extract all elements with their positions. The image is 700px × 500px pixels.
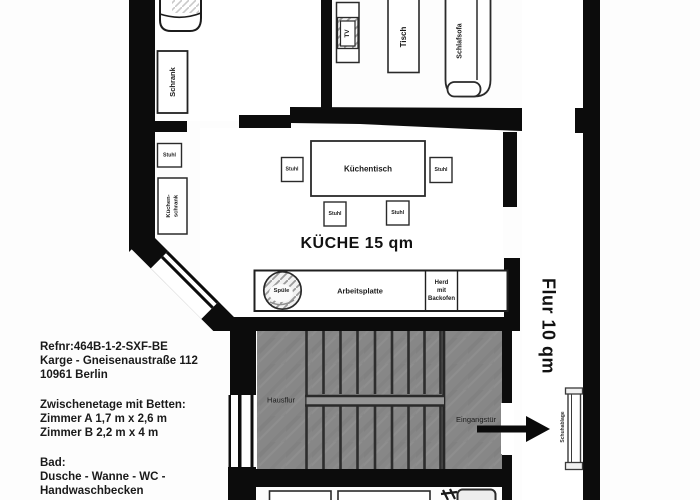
svg-text:Schrank: Schrank — [168, 66, 177, 96]
svg-text:Karge - Gneisenaustraße 112: Karge - Gneisenaustraße 112 — [40, 355, 198, 367]
svg-text:schrank: schrank — [174, 194, 180, 217]
svg-text:10961 Berlin: 10961 Berlin — [40, 369, 108, 381]
svg-text:Hausflur: Hausflur — [267, 396, 295, 405]
svg-text:Küchen-: Küchen- — [166, 194, 172, 217]
svg-text:Zwischenetage mit Betten:: Zwischenetage mit Betten: — [40, 399, 186, 411]
svg-text:Zimmer B 2,2 m x 4 m: Zimmer B 2,2 m x 4 m — [40, 427, 158, 439]
svg-text:Herd: Herd — [435, 280, 449, 286]
svg-text:Bad:: Bad: — [40, 457, 66, 469]
svg-text:Stuhl: Stuhl — [163, 153, 177, 159]
svg-text:Handwaschbecken: Handwaschbecken — [40, 485, 144, 497]
svg-text:Schlafsofa: Schlafsofa — [457, 23, 464, 59]
svg-text:Dusche - Wanne - WC -: Dusche - Wanne - WC - — [40, 471, 166, 483]
svg-text:Arbeitsplatte: Arbeitsplatte — [337, 287, 383, 296]
svg-text:Schuhablage: Schuhablage — [560, 411, 566, 442]
svg-text:Backofen: Backofen — [428, 296, 455, 302]
svg-text:TV: TV — [344, 29, 351, 38]
svg-text:Stuhl: Stuhl — [435, 167, 449, 173]
svg-text:Stuhl: Stuhl — [391, 210, 405, 216]
svg-text:Spüle: Spüle — [274, 288, 291, 294]
svg-text:mit: mit — [437, 288, 446, 294]
svg-text:Zimmer A 1,7 m x 2,6 m: Zimmer A 1,7 m x 2,6 m — [40, 413, 167, 425]
svg-text:Tisch: Tisch — [399, 27, 408, 48]
svg-text:Refnr:464B-1-2-SXF-BE: Refnr:464B-1-2-SXF-BE — [40, 341, 168, 353]
svg-text:KÜCHE 15 qm: KÜCHE 15 qm — [300, 233, 413, 252]
svg-text:Flur 10 qm: Flur 10 qm — [539, 278, 559, 374]
svg-text:Stuhl: Stuhl — [286, 167, 300, 173]
svg-text:Küchentisch: Küchentisch — [344, 165, 392, 174]
svg-text:Stuhl: Stuhl — [329, 211, 343, 217]
svg-text:Eingangstür: Eingangstür — [456, 415, 497, 424]
